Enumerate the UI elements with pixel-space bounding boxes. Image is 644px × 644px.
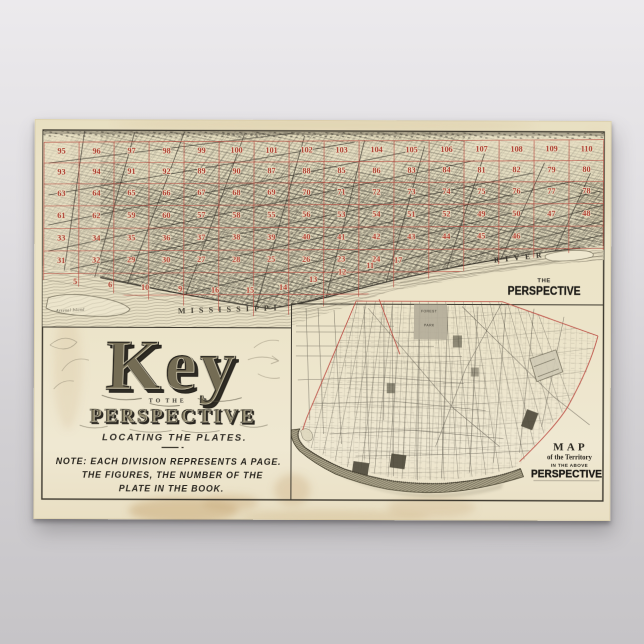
- svg-text:28: 28: [232, 255, 240, 264]
- svg-text:31: 31: [57, 256, 65, 265]
- svg-text:79: 79: [547, 165, 555, 174]
- svg-text:47: 47: [547, 209, 555, 218]
- svg-text:38: 38: [232, 233, 240, 242]
- svg-text:69: 69: [267, 188, 275, 197]
- svg-text:IN THE ABOVE: IN THE ABOVE: [551, 463, 588, 468]
- svg-text:56: 56: [302, 210, 310, 219]
- svg-text:89: 89: [197, 167, 205, 176]
- svg-text:84: 84: [442, 166, 450, 175]
- svg-text:44: 44: [442, 232, 450, 241]
- svg-text:35: 35: [127, 233, 135, 242]
- svg-text:23: 23: [337, 255, 345, 264]
- svg-text:66: 66: [162, 188, 170, 197]
- svg-text:59: 59: [127, 211, 135, 220]
- svg-text:49: 49: [477, 209, 485, 218]
- svg-text:62: 62: [92, 211, 100, 220]
- svg-text:THE FIGURES, THE NUMBER OF THE: THE FIGURES, THE NUMBER OF THE: [82, 469, 264, 480]
- svg-text:53: 53: [337, 210, 345, 219]
- svg-text:PERSPECTIVE: PERSPECTIVE: [508, 284, 581, 298]
- svg-text:90: 90: [232, 167, 240, 176]
- svg-text:83: 83: [407, 166, 415, 175]
- svg-text:48: 48: [582, 209, 590, 218]
- svg-text:65: 65: [127, 189, 135, 198]
- svg-text:6: 6: [108, 280, 112, 289]
- svg-text:95: 95: [57, 147, 65, 156]
- svg-text:51: 51: [407, 210, 415, 219]
- svg-text:42: 42: [372, 232, 380, 241]
- svg-text:97: 97: [127, 146, 135, 155]
- svg-text:68: 68: [232, 188, 240, 197]
- svg-text:100: 100: [230, 146, 242, 155]
- svg-text:72: 72: [372, 187, 380, 196]
- svg-text:F O R E S T P A R K: F O R E S T P A R K: [223, 133, 267, 137]
- svg-text:60: 60: [162, 211, 170, 220]
- svg-text:of the Territory: of the Territory: [547, 454, 593, 461]
- svg-text:78: 78: [582, 187, 590, 196]
- svg-text:102: 102: [300, 146, 312, 155]
- svg-text:11: 11: [366, 261, 374, 270]
- svg-text:50: 50: [512, 209, 520, 218]
- svg-text:61: 61: [57, 211, 65, 220]
- svg-text:13: 13: [309, 275, 317, 284]
- svg-text:PERSPECTIVE: PERSPECTIVE: [89, 405, 256, 428]
- svg-text:10: 10: [141, 283, 149, 292]
- svg-text:99: 99: [197, 146, 205, 155]
- svg-text:25: 25: [267, 255, 275, 264]
- svg-text:PLATE IN THE BOOK.: PLATE IN THE BOOK.: [119, 483, 224, 493]
- svg-text:T O T H E: T O T H E: [149, 398, 185, 404]
- svg-text:92: 92: [162, 167, 170, 176]
- svg-text:96: 96: [92, 146, 100, 155]
- svg-text:107: 107: [475, 145, 487, 154]
- svg-text:LOCATING THE PLATES.: LOCATING THE PLATES.: [102, 431, 247, 443]
- svg-text:74: 74: [442, 187, 450, 196]
- svg-text:32: 32: [92, 256, 100, 265]
- svg-text:70: 70: [302, 188, 310, 197]
- svg-text:17: 17: [394, 256, 402, 265]
- svg-text:82: 82: [512, 165, 520, 174]
- svg-text:109: 109: [545, 144, 557, 153]
- svg-text:34: 34: [92, 233, 100, 242]
- svg-text:33: 33: [57, 234, 65, 243]
- svg-text:Key: Key: [104, 324, 239, 404]
- svg-text:87: 87: [267, 166, 275, 175]
- svg-text:27: 27: [197, 255, 205, 264]
- svg-text:58: 58: [232, 210, 240, 219]
- svg-text:86: 86: [372, 166, 380, 175]
- svg-text:52: 52: [442, 210, 450, 219]
- svg-text:94: 94: [92, 167, 100, 176]
- svg-text:105: 105: [405, 145, 417, 154]
- svg-text:54: 54: [372, 210, 380, 219]
- svg-text:71: 71: [337, 188, 345, 197]
- svg-text:67: 67: [197, 188, 205, 197]
- svg-text:PERSPECTIVE: PERSPECTIVE: [531, 468, 602, 480]
- svg-text:81: 81: [477, 165, 485, 174]
- svg-text:110: 110: [581, 144, 593, 153]
- svg-text:104: 104: [370, 145, 382, 154]
- svg-text:37: 37: [197, 233, 205, 242]
- svg-text:12: 12: [338, 268, 346, 277]
- svg-text:57: 57: [197, 211, 205, 220]
- svg-text:5: 5: [73, 277, 77, 286]
- svg-text:91: 91: [127, 167, 135, 176]
- svg-text:108: 108: [510, 145, 522, 154]
- svg-text:43: 43: [407, 232, 415, 241]
- svg-text:88: 88: [302, 166, 310, 175]
- svg-text:101: 101: [265, 146, 277, 155]
- svg-text:46: 46: [512, 232, 520, 241]
- svg-text:MAP: MAP: [553, 441, 588, 453]
- svg-text:29: 29: [127, 256, 135, 265]
- svg-text:NOTE: EACH DIVISION REPRESENTS: NOTE: EACH DIVISION REPRESENTS A PAGE.: [56, 456, 282, 467]
- svg-text:73: 73: [407, 187, 415, 196]
- svg-text:26: 26: [302, 255, 310, 264]
- svg-text:14: 14: [279, 283, 287, 292]
- svg-text:77: 77: [547, 187, 555, 196]
- svg-text:41: 41: [337, 232, 345, 241]
- svg-text:9: 9: [178, 284, 182, 293]
- svg-text:80: 80: [582, 165, 590, 174]
- svg-text:55: 55: [267, 210, 275, 219]
- svg-text:98: 98: [162, 146, 170, 155]
- svg-text:30: 30: [162, 255, 170, 264]
- svg-text:85: 85: [337, 166, 345, 175]
- svg-text:75: 75: [477, 187, 485, 196]
- svg-text:63: 63: [57, 189, 65, 198]
- svg-text:15: 15: [246, 286, 254, 295]
- svg-text:103: 103: [335, 145, 347, 154]
- svg-text:106: 106: [440, 145, 452, 154]
- svg-text:40: 40: [302, 233, 310, 242]
- svg-text:16: 16: [211, 286, 219, 295]
- svg-text:FOREST: FOREST: [421, 309, 437, 313]
- svg-text:64: 64: [92, 189, 100, 198]
- svg-text:93: 93: [57, 167, 65, 176]
- svg-text:45: 45: [477, 232, 485, 241]
- svg-text:36: 36: [162, 233, 170, 242]
- svg-text:39: 39: [267, 233, 275, 242]
- svg-text:76: 76: [512, 187, 520, 196]
- svg-text:PARK: PARK: [424, 323, 435, 327]
